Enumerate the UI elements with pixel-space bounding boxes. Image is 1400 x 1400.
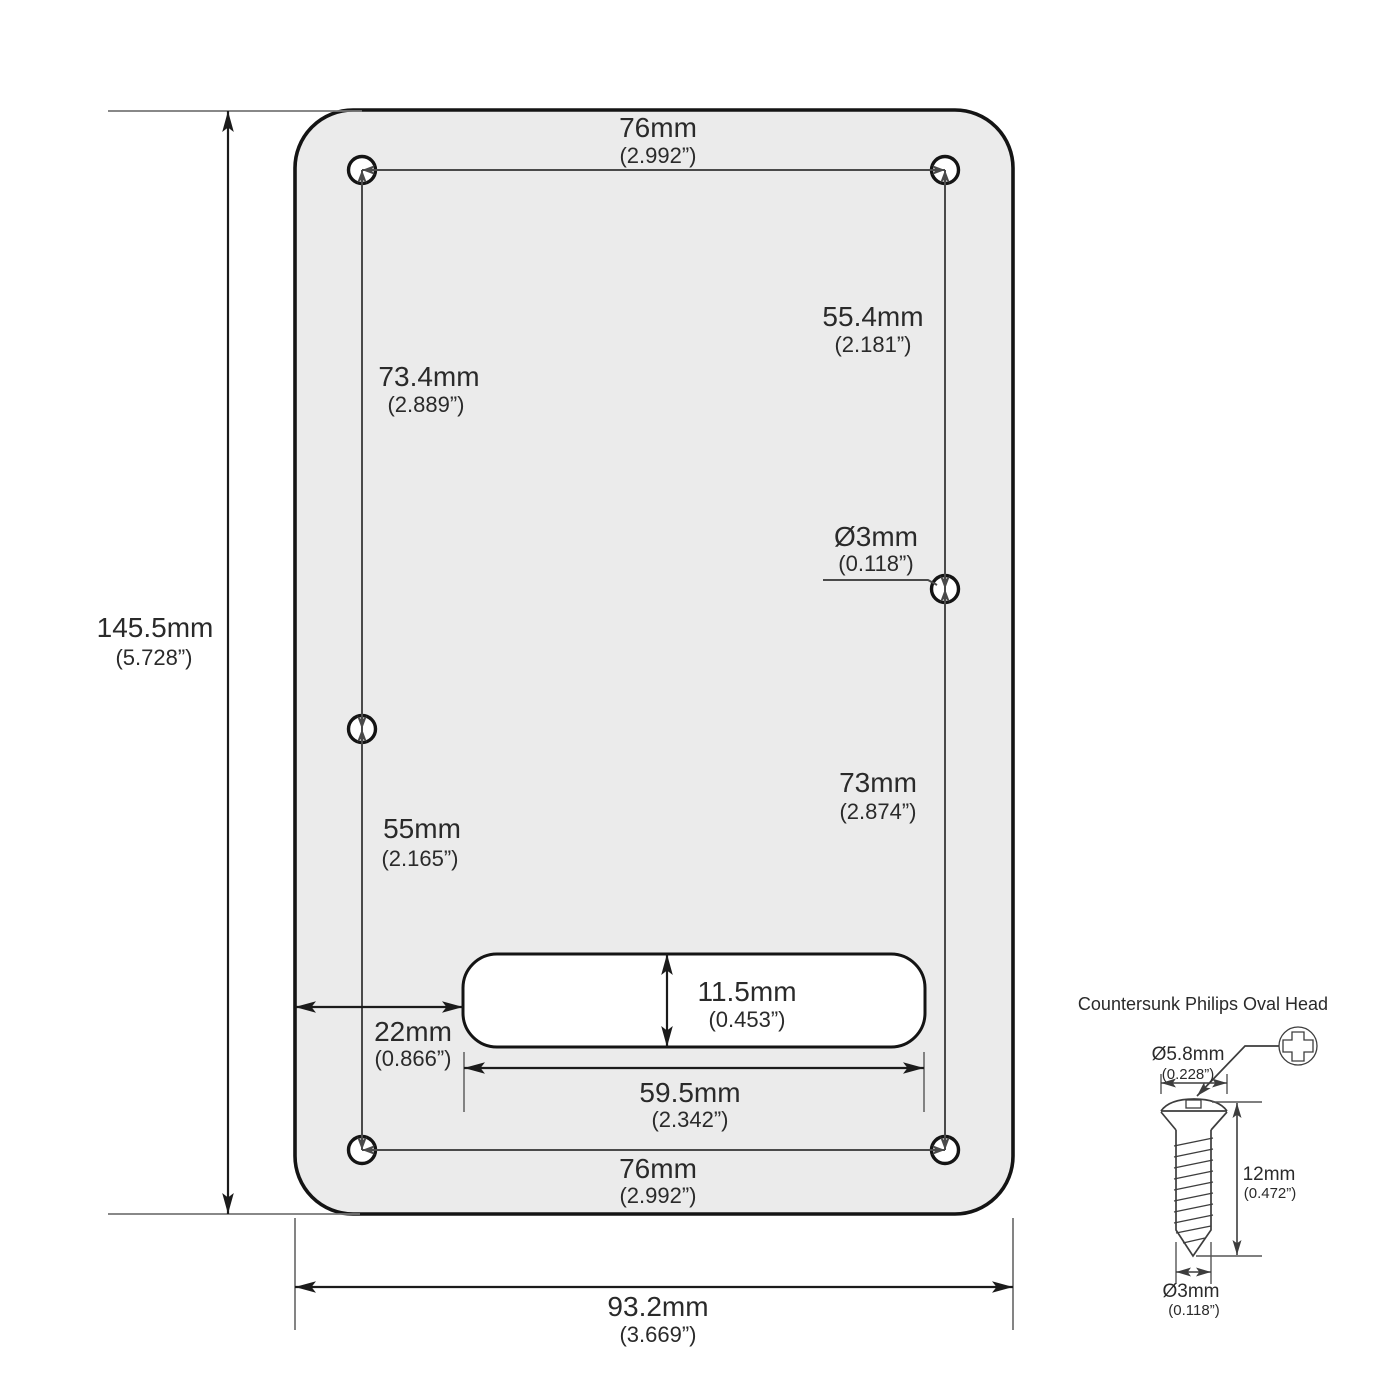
label-slot-offset-in: (0.866”) — [374, 1046, 451, 1071]
label-lower-left-mm: 55mm — [383, 813, 461, 844]
label-thread-diameter-mm: Ø3mm — [1163, 1281, 1220, 1302]
technical-drawing-page: 76mm (2.992”) 55.4mm (2.181”) 73.4mm (2.… — [0, 0, 1400, 1400]
label-bottom-width-in: (2.992”) — [619, 1183, 696, 1208]
label-slot-height-in: (0.453”) — [708, 1007, 785, 1032]
screw-threads — [1174, 1138, 1213, 1243]
label-lower-right-in: (2.874”) — [839, 799, 916, 824]
label-slot-width-mm: 59.5mm — [639, 1077, 740, 1108]
screw-detail: Countersunk Philips Oval Head Ø5.8mm (0.… — [1078, 994, 1328, 1319]
label-overall-height-mm: 145.5mm — [97, 612, 214, 643]
screw-head-dome — [1161, 1099, 1227, 1111]
label-overall-width-in: (3.669”) — [619, 1322, 696, 1347]
label-top-width-mm: 76mm — [619, 112, 697, 143]
label-thread-diameter-in: (0.118”) — [1168, 1302, 1219, 1319]
label-head-diameter-in: (0.228”) — [1162, 1066, 1215, 1083]
label-slot-width-in: (2.342”) — [651, 1107, 728, 1132]
label-slot-offset-mm: 22mm — [374, 1016, 452, 1047]
label-screw-length-in: (0.472”) — [1244, 1185, 1297, 1202]
label-overall-height-in: (5.728”) — [115, 645, 192, 670]
string-through-slot — [463, 954, 925, 1047]
label-head-diameter-mm: Ø5.8mm — [1152, 1044, 1225, 1065]
screw-head-circle — [1279, 1027, 1317, 1065]
screw-shank-outline — [1176, 1130, 1211, 1256]
screw-head-bevel — [1161, 1112, 1227, 1130]
screw-side-view — [1161, 1099, 1227, 1256]
phillips-cross-icon — [1283, 1032, 1313, 1061]
label-upper-right-mm: 55.4mm — [822, 301, 923, 332]
phillips-head-top-view — [1279, 1027, 1317, 1065]
label-bottom-width-mm: 76mm — [619, 1153, 697, 1184]
label-upper-right-in: (2.181”) — [834, 332, 911, 357]
label-top-width-in: (2.992”) — [619, 143, 696, 168]
label-hole-diameter-mm: Ø3mm — [834, 521, 918, 552]
backplate-dimension-diagram: 76mm (2.992”) 55.4mm (2.181”) 73.4mm (2.… — [0, 0, 1400, 1400]
label-lower-left-in: (2.165”) — [381, 846, 458, 871]
screw-detail-title: Countersunk Philips Oval Head — [1078, 994, 1328, 1014]
label-slot-height-mm: 11.5mm — [697, 976, 796, 1007]
label-hole-diameter-in: (0.118”) — [838, 551, 913, 576]
label-screw-length-mm: 12mm — [1243, 1164, 1296, 1185]
label-upper-left-in: (2.889”) — [387, 392, 464, 417]
label-lower-right-mm: 73mm — [839, 767, 917, 798]
label-overall-width-mm: 93.2mm — [607, 1291, 708, 1322]
screw-head-slot-notch — [1186, 1100, 1201, 1108]
label-upper-left-mm: 73.4mm — [378, 361, 479, 392]
